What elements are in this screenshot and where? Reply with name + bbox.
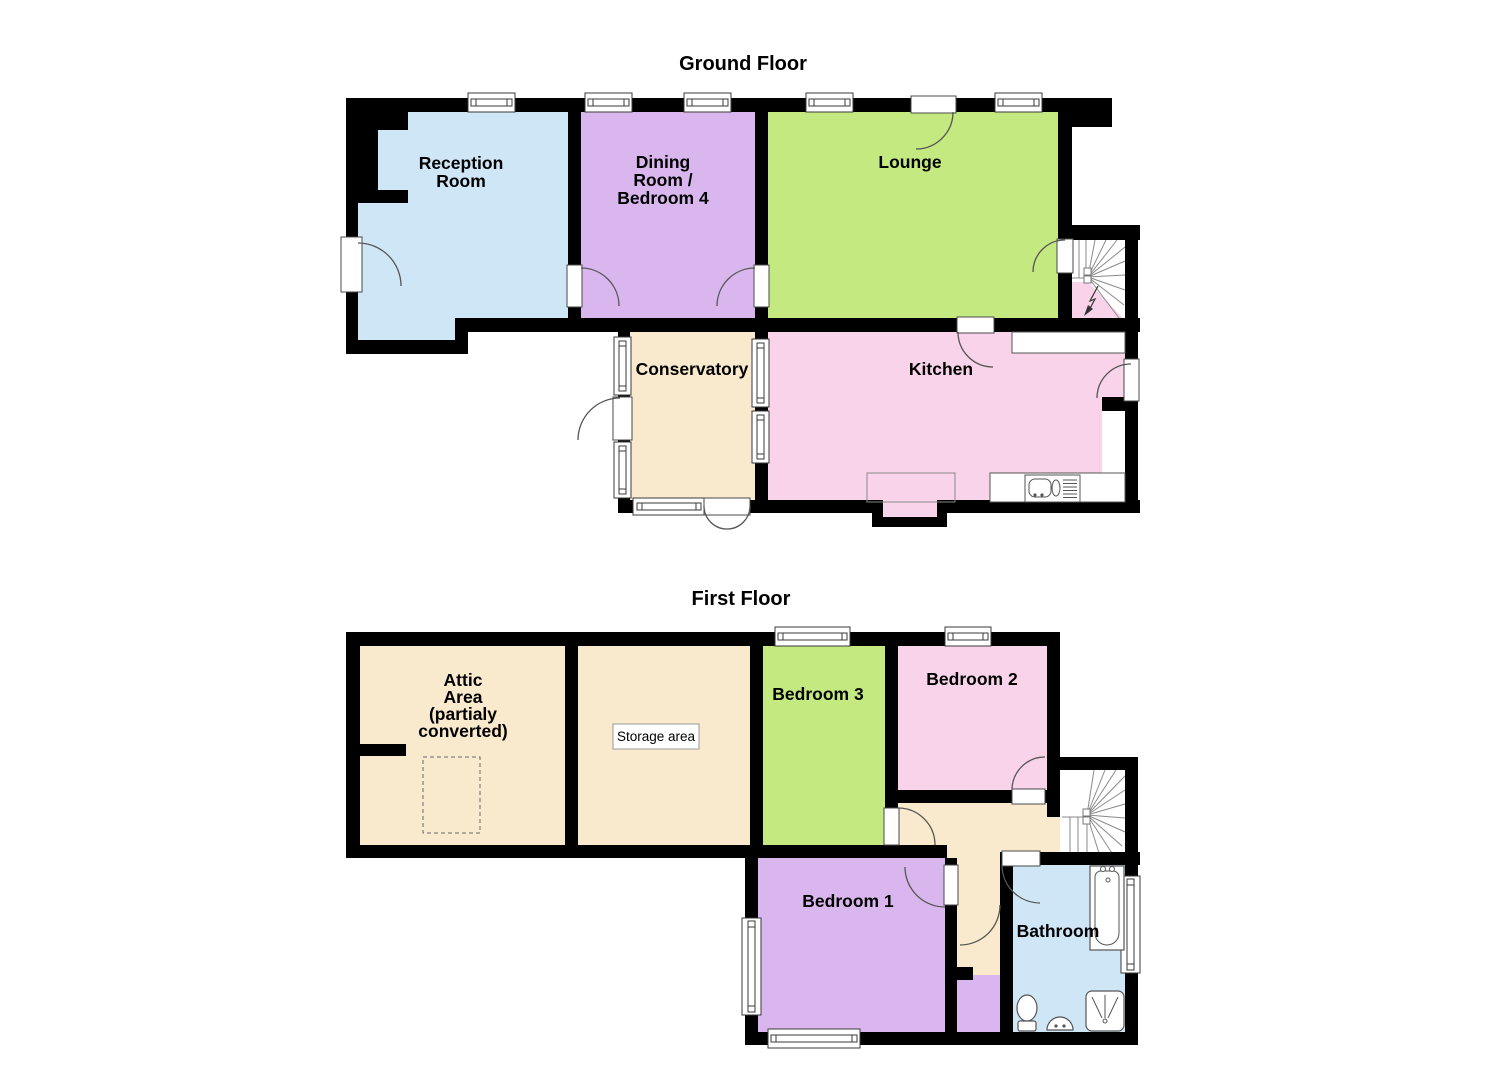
room-dining	[581, 112, 755, 318]
conservatory-french-doors	[704, 498, 750, 529]
svg-text:Room: Room	[436, 171, 486, 191]
window	[945, 627, 991, 646]
room-conservatory	[630, 332, 755, 500]
kitchen-bay	[883, 500, 937, 517]
label-bedroom2: Bedroom 2	[926, 669, 1018, 689]
room-reception	[358, 112, 568, 340]
kitchen-dead-area	[1102, 411, 1125, 475]
window	[684, 93, 731, 112]
ground-floor: Ground Floor	[341, 53, 1140, 529]
staircase-first	[1060, 770, 1125, 853]
window	[468, 93, 515, 112]
window	[633, 498, 705, 515]
window	[752, 339, 769, 407]
label-reception: Reception	[419, 153, 504, 173]
window	[752, 411, 769, 463]
room-bedroom1	[758, 858, 945, 1032]
label-conservatory: Conservatory	[636, 359, 749, 379]
window	[585, 93, 632, 112]
first-floor-title: First Floor	[692, 588, 791, 610]
svg-text:converted): converted)	[418, 721, 507, 741]
staircase-ground	[1072, 240, 1125, 318]
label-lounge: Lounge	[878, 152, 941, 172]
svg-text:Room /: Room /	[633, 170, 692, 190]
label-storage: Storage area	[617, 729, 696, 744]
label-bedroom1: Bedroom 1	[802, 891, 894, 911]
room-bedroom3	[763, 646, 885, 845]
label-bathroom: Bathroom	[1017, 921, 1100, 941]
window	[806, 93, 853, 112]
floor-plan-svg: Ground Floor	[0, 0, 1485, 1080]
kitchen-sink-icon	[1025, 475, 1080, 502]
window	[995, 93, 1042, 112]
toilet-icon	[1017, 995, 1037, 1031]
first-floor: First Floor	[346, 588, 1140, 1048]
conservatory-side-door	[578, 397, 632, 440]
room-bedroom2	[898, 646, 1047, 790]
label-kitchen: Kitchen	[909, 359, 973, 379]
shower-icon	[1086, 991, 1124, 1031]
room-alcove	[957, 975, 1000, 1032]
floorplan-canvas: Ground Floor	[0, 0, 1485, 1080]
label-bedroom3: Bedroom 3	[772, 684, 864, 704]
window	[614, 337, 631, 395]
room-lounge	[768, 112, 1058, 318]
label-dining: Dining	[636, 152, 690, 172]
window	[614, 442, 631, 498]
window	[768, 1029, 860, 1048]
svg-text:Bedroom 4: Bedroom 4	[617, 188, 709, 208]
window	[775, 627, 850, 646]
ground-floor-title: Ground Floor	[679, 53, 807, 75]
kitchen-counter-top	[1012, 332, 1125, 353]
window	[742, 918, 761, 1015]
